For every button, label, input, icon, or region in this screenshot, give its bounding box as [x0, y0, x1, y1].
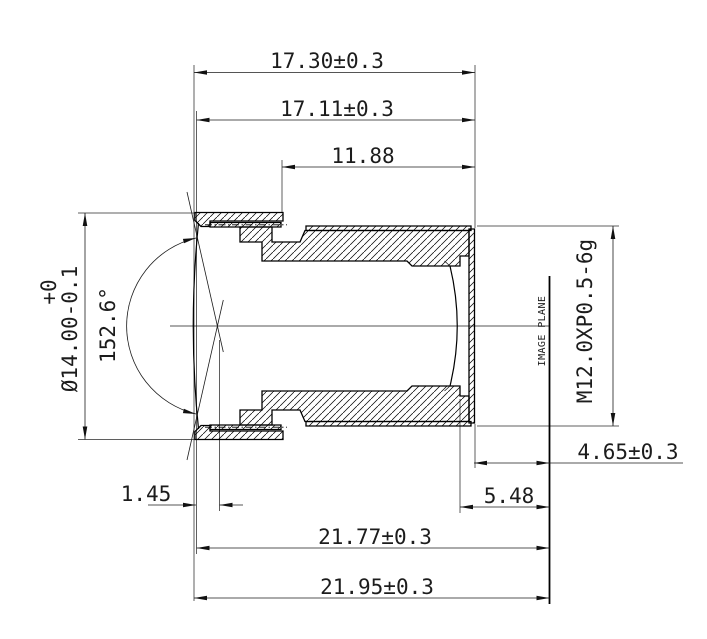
dim-mech-back-focal-label: 5.48: [484, 484, 535, 508]
dim-total-length-label: 17.30±0.3: [270, 49, 384, 73]
dim-front-vertex-offset-label: 1.45: [121, 482, 172, 506]
dim-back-focal-label: 4.65±0.3: [577, 440, 678, 464]
dim-track-to-flange-label: 21.77±0.3: [318, 525, 432, 549]
dim-front-od-tolerance-label: +0: [37, 279, 61, 304]
dim-total-track-label: 21.95±0.3: [320, 575, 434, 599]
drawing-canvas: 17.30±0.3 17.11±0.3 11.88 Ø14.00-0.1 +0 …: [0, 0, 707, 639]
dim-body-length-label: 17.11±0.3: [280, 97, 394, 121]
barrel-body-bottom: [240, 386, 469, 425]
dim-fov-angle-label: 152.6°: [96, 287, 120, 363]
rear-band: [469, 229, 475, 423]
thread-crest-top: [306, 226, 471, 231]
image-plane-label: IMAGE PLANE: [537, 296, 548, 367]
barrel-body-top: [240, 227, 469, 266]
dim-thread-length-label: 11.88: [331, 144, 394, 168]
lens-mechanical-drawing: 17.30±0.3 17.11±0.3 11.88 Ø14.00-0.1 +0 …: [0, 0, 707, 639]
dim-front-od-label: Ø14.00-0.1: [58, 266, 82, 392]
dim-thread-spec-label: M12.0XP0.5-6g: [573, 239, 597, 403]
thread-crest-bottom: [306, 422, 471, 427]
